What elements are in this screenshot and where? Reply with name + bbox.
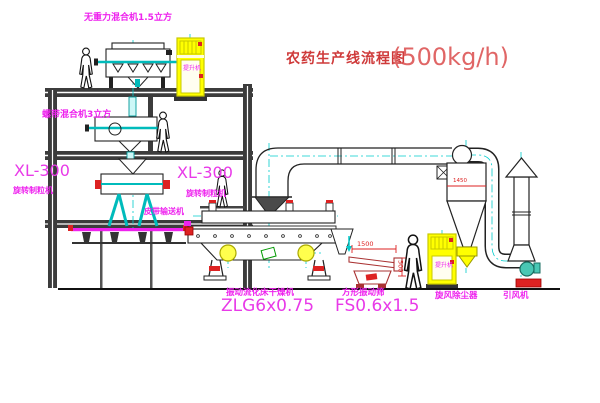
rotary-granulator <box>95 159 170 226</box>
ground-line <box>58 288 560 290</box>
ribbon-mixer <box>85 97 167 159</box>
person-icon <box>157 112 170 152</box>
flow-diagram-canvas: 农药生产线流程图 (500kg/h) 无重力混合机1.5立方 螺带混合机3立方 … <box>0 0 600 403</box>
person-icon <box>404 235 421 289</box>
bucket-elevator-2 <box>426 234 458 288</box>
diagram-linework <box>0 0 600 403</box>
person-icon <box>216 170 228 207</box>
fluid-bed-dryer <box>184 197 336 280</box>
person-icon <box>80 48 93 88</box>
square-vibrating-screen <box>331 229 406 288</box>
bucket-elevator-1 <box>174 38 207 101</box>
exhaust-duct <box>252 148 452 197</box>
exhaust-stack <box>506 158 537 261</box>
gravity-free-mixer <box>94 43 182 88</box>
